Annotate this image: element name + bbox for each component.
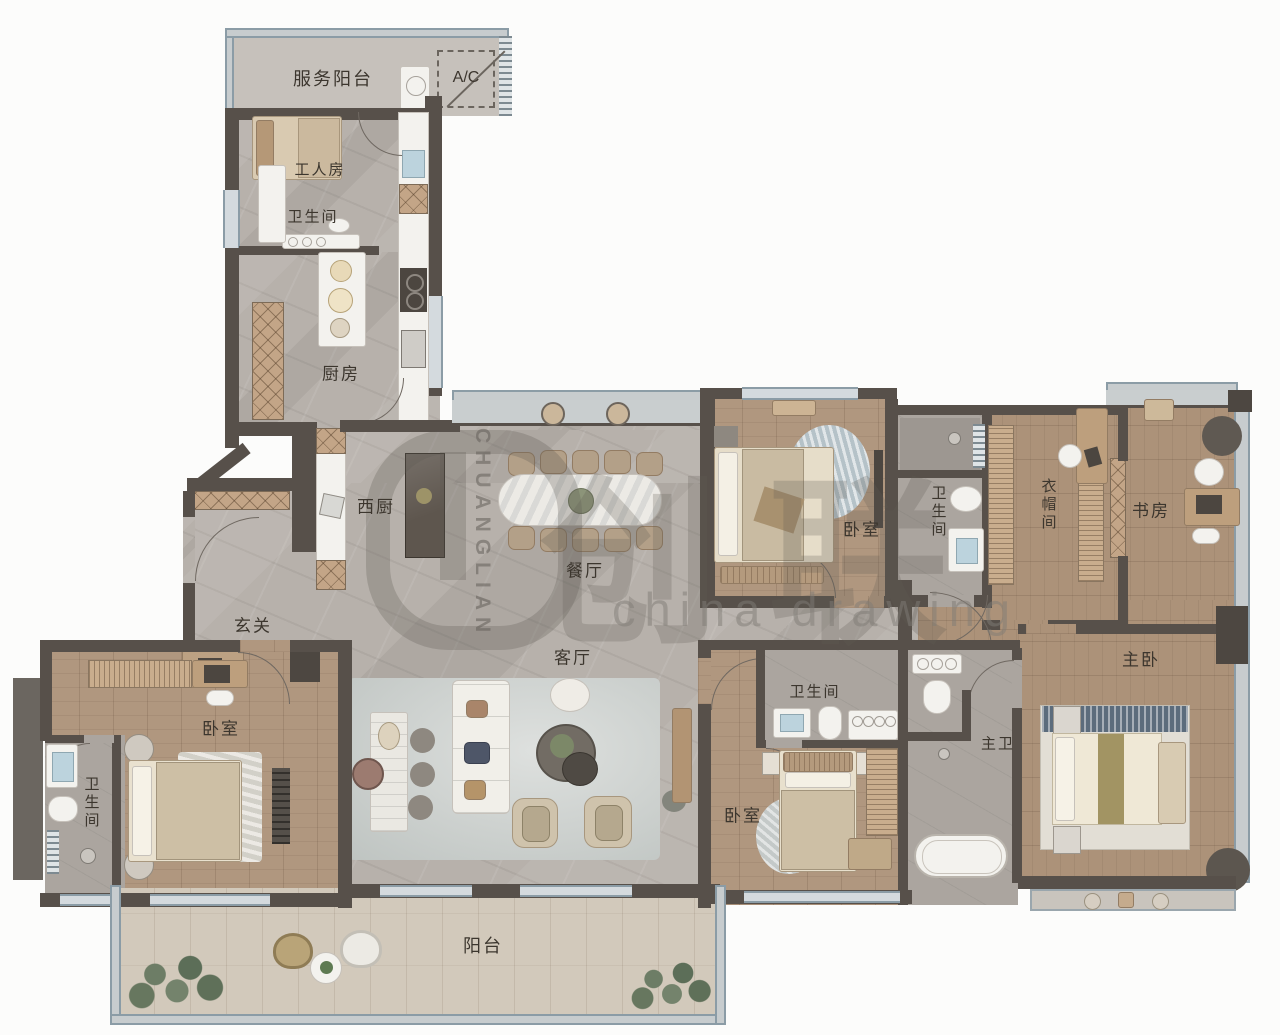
coffee-table-small bbox=[562, 752, 598, 786]
washer-drum bbox=[406, 76, 426, 96]
stool bbox=[410, 728, 435, 753]
dining-chair bbox=[508, 526, 535, 550]
bath-left-sink bbox=[52, 752, 74, 782]
kitchen-cabinet bbox=[399, 184, 428, 214]
label-living: 客厅 bbox=[554, 644, 592, 669]
cloak-wardrobe-left bbox=[988, 425, 1014, 585]
sofa-cushion bbox=[464, 742, 490, 764]
wall bbox=[962, 690, 971, 741]
label-bath-top: 卫生间 bbox=[928, 485, 949, 539]
towel-rack bbox=[47, 830, 59, 874]
master-bed-runner bbox=[1098, 734, 1124, 824]
dining-chair bbox=[636, 526, 663, 550]
door-opening bbox=[834, 596, 884, 608]
stool bbox=[410, 762, 435, 787]
bath-mid-sink bbox=[780, 714, 804, 732]
bedroom-mid-wardrobe bbox=[866, 748, 898, 836]
plate bbox=[328, 288, 353, 313]
bay-plant-pot bbox=[606, 402, 630, 426]
cloak-study-cabinet bbox=[1110, 458, 1126, 558]
dining-chair bbox=[636, 452, 663, 476]
stool-tan bbox=[352, 758, 384, 790]
sink bbox=[302, 237, 312, 247]
pillar bbox=[290, 648, 320, 682]
sink bbox=[316, 237, 326, 247]
label-bath-left: 卫生间 bbox=[81, 776, 102, 830]
west-kitchen-island bbox=[405, 453, 445, 558]
shower-zone bbox=[900, 418, 980, 472]
nightstand bbox=[1053, 826, 1081, 854]
floor-plan: CHUANGLIAN 创联 china drawing 服务阳台 A/C 工人房… bbox=[0, 0, 1280, 1035]
label-bath-mid: 卫生间 bbox=[789, 681, 840, 702]
shower-drain bbox=[938, 748, 950, 760]
label-bedroom-top: 卧室 bbox=[843, 516, 881, 541]
laundry-drum bbox=[852, 716, 863, 727]
wall bbox=[1118, 556, 1128, 630]
nightstand bbox=[1053, 706, 1081, 734]
desk-chair bbox=[206, 690, 234, 706]
wall bbox=[908, 732, 970, 741]
kitchen-tall-cabinet bbox=[252, 302, 284, 420]
window bbox=[744, 891, 900, 903]
wall bbox=[1118, 405, 1128, 461]
wall bbox=[338, 640, 352, 908]
tv-console bbox=[672, 708, 692, 803]
armchair-seat bbox=[522, 806, 550, 842]
sill-deco bbox=[1084, 893, 1101, 910]
bed-mid-pillows bbox=[785, 772, 851, 788]
study-stool bbox=[1192, 528, 1220, 544]
door-opening bbox=[183, 517, 195, 583]
door-opening bbox=[766, 740, 802, 748]
window bbox=[520, 885, 632, 897]
laundry-drum bbox=[885, 716, 896, 727]
balcony-plants-left bbox=[122, 948, 232, 1014]
label-balcony: 阳台 bbox=[463, 932, 503, 958]
dining-centerpiece bbox=[568, 488, 594, 514]
label-maid-bath: 卫生间 bbox=[287, 206, 338, 227]
wall-shelf bbox=[772, 400, 816, 416]
door-opening bbox=[698, 658, 711, 704]
wall bbox=[898, 470, 982, 478]
plate bbox=[330, 260, 352, 282]
wall bbox=[40, 640, 352, 652]
bedroom-mid-bench bbox=[848, 838, 892, 870]
window bbox=[742, 387, 858, 400]
burner bbox=[406, 292, 424, 310]
burner bbox=[406, 274, 424, 292]
wall bbox=[885, 405, 995, 415]
armchair-seat bbox=[595, 805, 623, 841]
window bbox=[380, 885, 472, 897]
wall bbox=[40, 645, 52, 741]
kitchen-sink bbox=[401, 330, 426, 368]
window bbox=[60, 894, 110, 906]
nightstand bbox=[714, 426, 738, 447]
label-master-bath: 主卫 bbox=[981, 733, 1015, 754]
label-study: 书房 bbox=[1132, 497, 1170, 522]
pillar bbox=[1216, 606, 1248, 664]
desk-laptop bbox=[204, 665, 230, 683]
study-chair bbox=[1194, 458, 1224, 486]
wall bbox=[756, 648, 765, 748]
tv-panel bbox=[272, 768, 290, 844]
cloak-island bbox=[1076, 408, 1108, 484]
wall bbox=[700, 388, 715, 606]
master-pillows bbox=[1055, 737, 1075, 821]
laundry-drum bbox=[874, 716, 885, 727]
wall bbox=[1018, 876, 1236, 889]
window bbox=[223, 190, 240, 248]
bed-mid-blanket bbox=[781, 790, 855, 870]
kitchen-sink-blue bbox=[402, 150, 425, 178]
west-kitchen-appliance bbox=[319, 493, 345, 519]
balcony-glazing-left bbox=[110, 885, 121, 1025]
label-kitchen: 厨房 bbox=[322, 360, 360, 385]
tea-set bbox=[378, 722, 400, 750]
window bbox=[150, 894, 270, 906]
foyer-cabinet bbox=[194, 491, 290, 510]
dining-chair bbox=[572, 528, 599, 552]
maid-shower bbox=[258, 165, 286, 243]
bed-left-pillows bbox=[132, 766, 152, 856]
dining-chair bbox=[540, 450, 567, 474]
label-bedroom-mid: 卧室 bbox=[724, 802, 762, 827]
dining-chair bbox=[604, 450, 631, 474]
plate bbox=[330, 318, 350, 338]
sill-deco bbox=[1118, 892, 1134, 908]
label-service-balcony: 服务阳台 bbox=[293, 65, 373, 91]
west-kitchen-cabinet-bot bbox=[316, 560, 346, 590]
service-balcony-glazing bbox=[225, 36, 234, 116]
sink bbox=[288, 237, 298, 247]
wall bbox=[225, 108, 239, 448]
balcony-chair-tan bbox=[273, 933, 313, 969]
ac-louver bbox=[499, 36, 512, 116]
sink bbox=[931, 658, 943, 670]
bay-plant-pot bbox=[541, 402, 565, 426]
cloak-wardrobe-right bbox=[1078, 482, 1104, 582]
window bbox=[427, 296, 443, 388]
dining-chair bbox=[604, 528, 631, 552]
island-plant bbox=[416, 488, 432, 504]
bed-mid-headboard bbox=[783, 752, 853, 772]
pouf bbox=[550, 678, 590, 712]
dining-chair bbox=[572, 450, 599, 474]
bathtub-inner bbox=[922, 840, 1002, 874]
door-opening bbox=[84, 735, 114, 743]
cloak-chair bbox=[1058, 444, 1082, 468]
label-master-bedroom: 主卧 bbox=[1122, 646, 1160, 671]
dining-bay-sill bbox=[452, 400, 708, 426]
label-maid-room: 工人房 bbox=[294, 159, 345, 180]
sink bbox=[945, 658, 957, 670]
wall bbox=[905, 640, 1020, 650]
wall bbox=[885, 399, 898, 605]
toilet-top bbox=[950, 486, 982, 512]
balcony-plants-right bbox=[626, 955, 718, 1015]
service-balcony-glazing bbox=[225, 28, 509, 38]
shower-drain bbox=[948, 432, 961, 445]
study-books bbox=[1144, 399, 1174, 421]
balcony-chair-white bbox=[340, 930, 382, 968]
sill-deco bbox=[1152, 893, 1169, 910]
bath-left-toilet bbox=[48, 796, 78, 822]
dining-chair bbox=[540, 528, 567, 552]
sink bbox=[917, 658, 929, 670]
bath-top-fixture bbox=[973, 424, 985, 468]
pillar bbox=[1228, 390, 1252, 412]
wall bbox=[292, 432, 316, 552]
sofa-cushion bbox=[464, 780, 486, 800]
door-opening bbox=[1026, 624, 1076, 634]
bedroom-left-wardrobe bbox=[88, 660, 192, 688]
wall bbox=[187, 478, 293, 491]
balcony-table-plant bbox=[320, 961, 333, 974]
dining-chair bbox=[508, 452, 535, 476]
stool bbox=[408, 795, 433, 820]
laundry-drum bbox=[863, 716, 874, 727]
study-side-table bbox=[1202, 416, 1242, 456]
study-laptop bbox=[1196, 495, 1222, 514]
vanity-sink bbox=[956, 538, 978, 564]
bed-pillows bbox=[718, 452, 738, 556]
bed-left-blanket bbox=[156, 762, 240, 860]
door-opening bbox=[240, 640, 290, 652]
master-toilet bbox=[923, 680, 951, 714]
master-chaise bbox=[1158, 742, 1186, 824]
label-dining: 餐厅 bbox=[566, 557, 604, 582]
wall bbox=[898, 645, 908, 905]
bed-bench bbox=[720, 566, 824, 584]
utility-shaft bbox=[13, 678, 43, 880]
bath-mid-toilet bbox=[818, 706, 842, 740]
balcony-glazing-bottom bbox=[110, 1014, 726, 1025]
wall bbox=[112, 735, 121, 905]
sofa-cushion bbox=[466, 700, 488, 718]
shower-drain bbox=[80, 848, 96, 864]
wall bbox=[698, 640, 910, 650]
wall bbox=[340, 420, 460, 432]
label-cloakroom: 衣帽间 bbox=[1038, 478, 1059, 532]
label-bedroom-left: 卧室 bbox=[202, 715, 240, 740]
label-west-kitchen: 西厨 bbox=[357, 493, 395, 518]
label-foyer: 玄关 bbox=[234, 612, 272, 637]
label-ac: A/C bbox=[453, 69, 480, 87]
